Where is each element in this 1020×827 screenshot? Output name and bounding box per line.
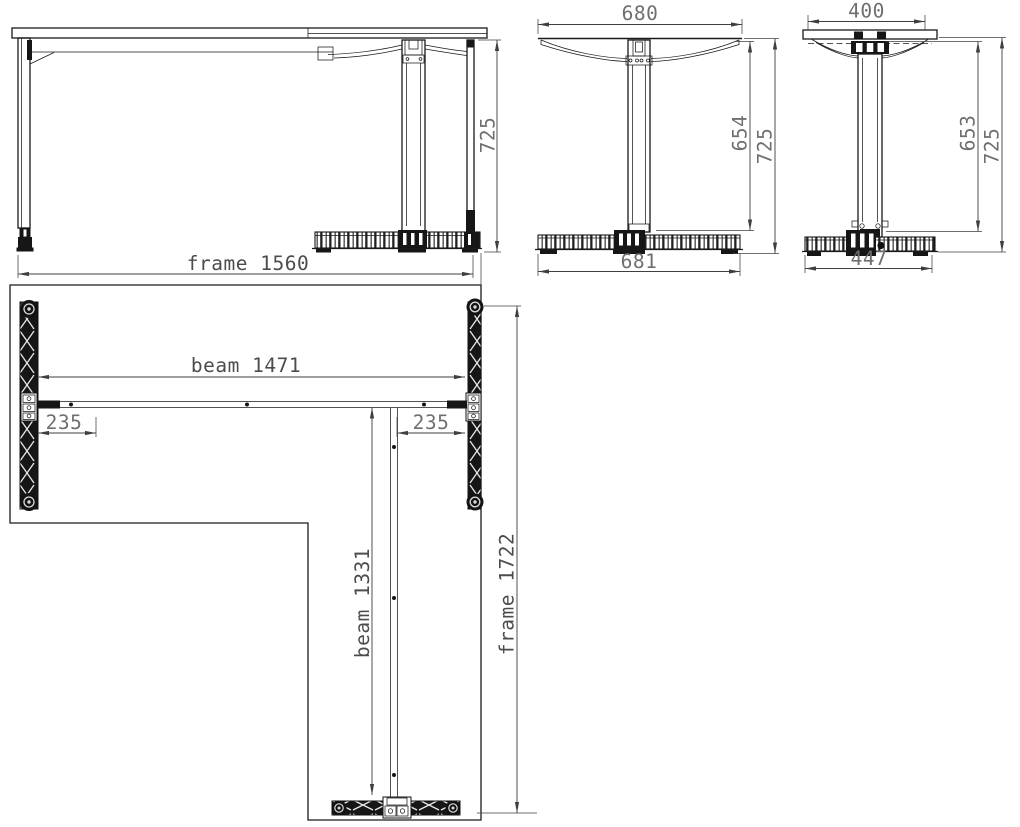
front-underdesk-beam bbox=[30, 52, 318, 64]
plan-dim-beam-length-label: beam 1471 bbox=[191, 354, 301, 377]
plan-left-foot-bracket bbox=[21, 393, 37, 421]
side-long-dim-top-width: 680 bbox=[538, 2, 742, 34]
technical-drawing: 725 bbox=[0, 0, 1020, 827]
plan-horizontal-beam bbox=[38, 401, 467, 409]
side-short-dim-top-width-label: 400 bbox=[848, 0, 885, 23]
side-long-dim-column-height: 654 bbox=[656, 42, 754, 231]
plan-dim-beam-length: beam 1471 bbox=[38, 354, 465, 377]
plan-return-beam bbox=[391, 408, 398, 800]
side-long-column bbox=[626, 40, 652, 232]
side-view-long: 680 654 725 681 bbox=[535, 2, 779, 276]
side-long-dim-column-height-label: 654 bbox=[729, 115, 752, 152]
front-right-leg bbox=[466, 40, 475, 232]
side-long-dim-total-height-label: 725 bbox=[754, 128, 777, 165]
plan-dim-frame-depth-label: frame 1722 bbox=[496, 533, 519, 655]
side-long-wing-bracket bbox=[541, 40, 739, 62]
front-desktop bbox=[12, 28, 487, 38]
plan-dim-frame-width-label: frame 1560 bbox=[187, 252, 309, 275]
plan-dim-return-beam-length-label: beam 1331 bbox=[351, 548, 374, 658]
plan-left-foot bbox=[20, 300, 38, 511]
plan-dim-right-offset-label: 235 bbox=[413, 411, 450, 434]
leveling-cap bbox=[332, 801, 347, 816]
side-short-dim-foot-length-label: 447 bbox=[851, 247, 888, 270]
plan-bottom-foot bbox=[332, 797, 461, 818]
plan-view: frame 1560 beam 1471 235 235 beam 1331 bbox=[10, 252, 537, 820]
side-short-dim-top-width: 400 bbox=[808, 0, 925, 30]
side-short-dim-column-height-label: 653 bbox=[957, 115, 980, 152]
plan-dim-left-offset: 235 bbox=[38, 411, 96, 437]
side-long-dim-top-width-label: 680 bbox=[622, 2, 659, 25]
front-dim-height: 725 bbox=[477, 40, 502, 252]
front-left-foot bbox=[17, 228, 34, 252]
side-view-short: 400 653 725 447 bbox=[802, 0, 1006, 273]
front-foot-base bbox=[312, 230, 482, 253]
leveling-cap bbox=[446, 801, 461, 816]
side-short-desktop bbox=[803, 30, 937, 39]
drawing-canvas: 725 bbox=[0, 0, 1020, 827]
plan-dim-right-offset: 235 bbox=[397, 411, 465, 437]
plan-right-foot-bracket bbox=[466, 393, 481, 421]
leveling-cap bbox=[467, 494, 484, 511]
side-long-dim-foot-length: 681 bbox=[538, 250, 740, 276]
plan-bottom-foot-bracket bbox=[383, 797, 411, 818]
side-short-column bbox=[852, 54, 888, 237]
plan-dim-return-beam-length: beam 1331 bbox=[351, 408, 374, 796]
plan-right-foot bbox=[466, 299, 484, 511]
leveling-cap bbox=[20, 493, 38, 511]
front-dim-height-label: 725 bbox=[477, 117, 500, 154]
leveling-cap bbox=[467, 299, 484, 316]
side-short-dim-column-height: 653 bbox=[886, 42, 982, 232]
leveling-cap bbox=[20, 300, 38, 318]
front-column-leg bbox=[318, 40, 467, 232]
plan-dim-frame-depth: frame 1722 bbox=[477, 306, 537, 813]
front-view: 725 bbox=[12, 28, 501, 253]
plan-dim-left-offset-label: 235 bbox=[46, 411, 83, 434]
side-short-dim-total-height-label: 725 bbox=[981, 128, 1004, 165]
plan-dim-frame-width: frame 1560 bbox=[18, 252, 481, 285]
front-left-leg bbox=[17, 38, 34, 252]
side-long-dim-foot-length-label: 681 bbox=[621, 250, 658, 273]
